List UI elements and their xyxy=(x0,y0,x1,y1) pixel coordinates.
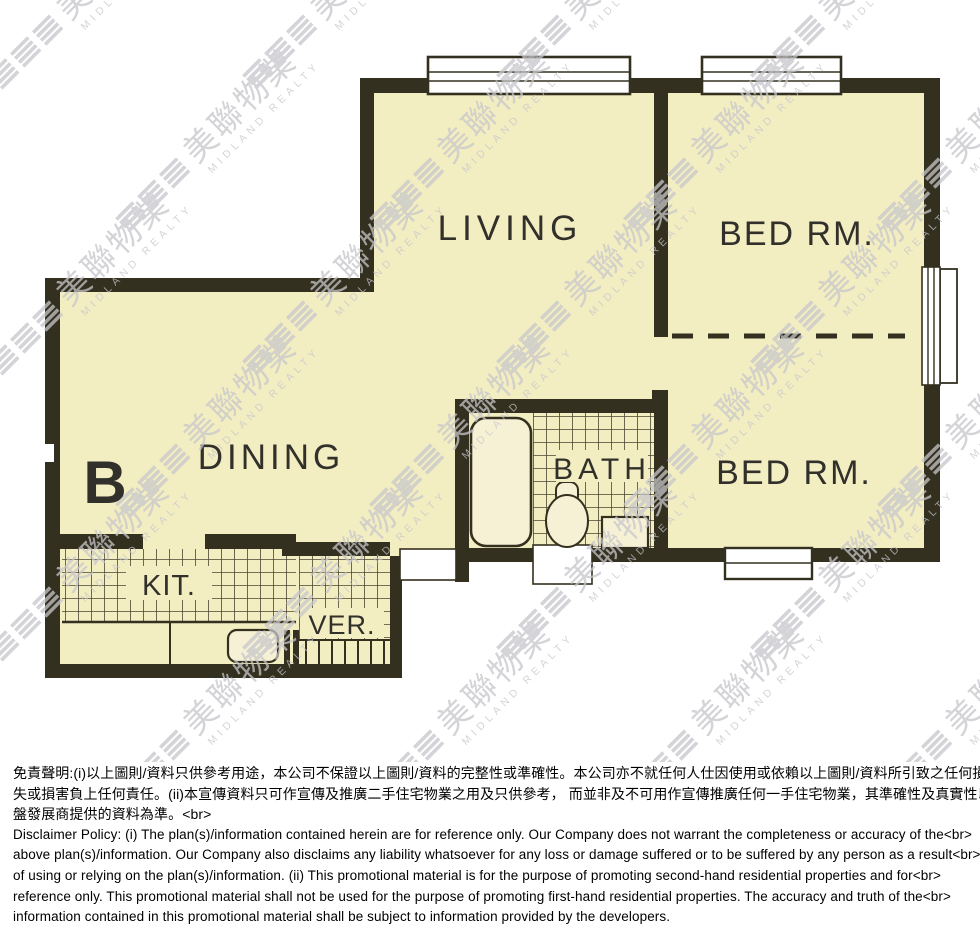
watermark-instance xyxy=(870,604,980,762)
disclaimer-line: 盤發展商提供的資料為準。<br> xyxy=(13,804,971,825)
disclaimer-line: above plan(s)/information. Our Company a… xyxy=(13,845,971,866)
watermark-instance xyxy=(0,0,196,103)
floorplan-page: 美聯物業 MIDLAND REALTY xyxy=(0,0,980,937)
bedroom-bottom-window xyxy=(725,548,812,579)
disclaimer-line: 失或損害負上任何責任。(ii)本宣傳資料只可作宣傳及推廣二手住宅物業之用及只供參… xyxy=(13,784,971,805)
disclaimer-line: information contained in this promotiona… xyxy=(13,907,971,928)
disclaimer-line: of using or relying on the plan(s)/infor… xyxy=(13,866,971,887)
watermark-instance xyxy=(616,604,830,762)
disclaimer-block: 免責聲明:(i)以上圖則/資料只供參考用途，本公司不保證以上圖則/資料的完整性或… xyxy=(13,763,971,928)
disclaimer-line: Disclaimer Policy: (i) The plan(s)/infor… xyxy=(13,825,971,846)
toilet-bowl xyxy=(546,495,588,547)
verandah-door xyxy=(400,549,456,580)
disclaimer-line: 免責聲明:(i)以上圖則/資料只供參考用途，本公司不保證以上圖則/資料的完整性或… xyxy=(13,763,971,784)
room-label-kitchen: KIT. xyxy=(142,570,196,602)
wall-recess xyxy=(38,444,54,462)
floorplan-image: 美聯物業 MIDLAND REALTY xyxy=(0,0,980,762)
right-bay-window xyxy=(922,267,957,385)
room-label-bath: BATH xyxy=(553,453,651,486)
room-label-living: LIVING xyxy=(438,209,583,248)
room-label-bed-rm-bottom: BED RM. xyxy=(716,454,872,492)
disclaimer-line: reference only. This promotional materia… xyxy=(13,887,971,908)
